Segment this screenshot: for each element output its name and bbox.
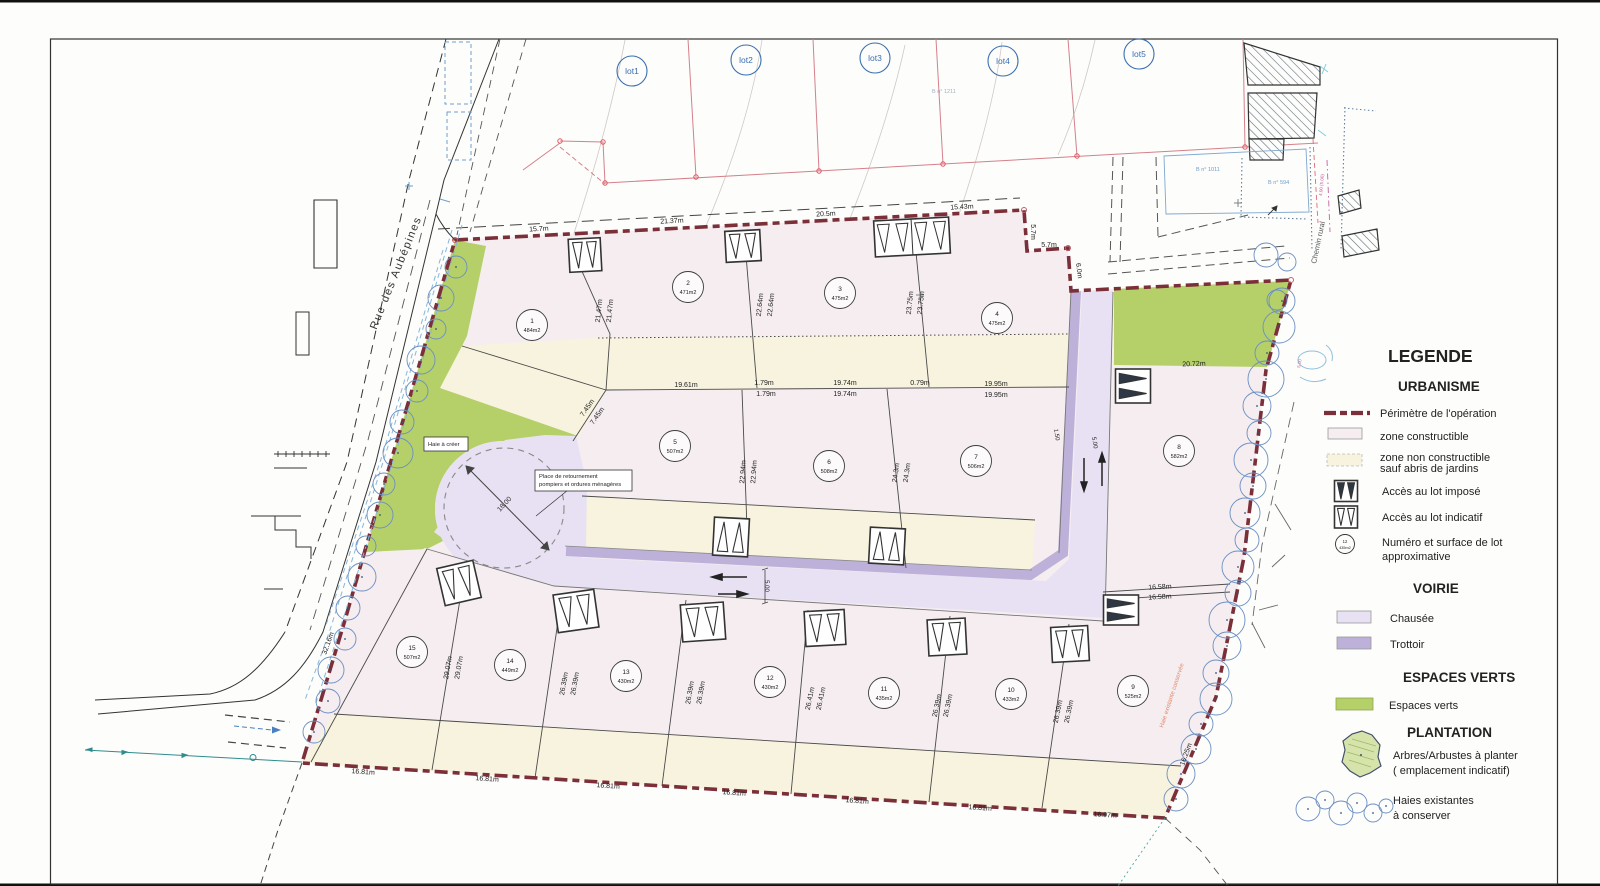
svg-text:525m2: 525m2 [1125, 694, 1142, 700]
svg-text:7: 7 [974, 454, 978, 461]
svg-text:VOIRIE: VOIRIE [1413, 581, 1459, 596]
svg-text:lot4: lot4 [996, 56, 1010, 66]
svg-text:lot5: lot5 [1132, 49, 1146, 59]
svg-text:Espaces verts: Espaces verts [1389, 700, 1459, 712]
svg-text:475m2: 475m2 [832, 296, 849, 302]
svg-text:5: 5 [673, 439, 677, 446]
svg-text:à conserver: à conserver [1393, 810, 1451, 822]
svg-text:15.7m: 15.7m [529, 225, 549, 233]
svg-text:4: 4 [995, 311, 999, 318]
svg-text:5.00: 5.00 [763, 580, 769, 592]
svg-text:12: 12 [766, 675, 774, 682]
svg-text:1.79m: 1.79m [754, 380, 774, 387]
svg-text:508m2: 508m2 [821, 469, 838, 475]
svg-text:16.58m: 16.58m [1148, 583, 1172, 591]
svg-text:Numéro et surface de lot: Numéro et surface de lot [1382, 537, 1502, 549]
svg-text:19.61m: 19.61m [674, 382, 698, 389]
svg-text:20.72m: 20.72m [1182, 361, 1206, 369]
svg-text:507m2: 507m2 [404, 655, 421, 661]
svg-text:pompiers et ordures ménagères: pompiers et ordures ménagères [539, 482, 621, 488]
svg-text:20.5m: 20.5m [816, 210, 836, 218]
svg-text:URBANISME: URBANISME [1398, 379, 1480, 394]
svg-text:16.58m: 16.58m [1148, 593, 1172, 601]
svg-text:8: 8 [1177, 444, 1181, 451]
svg-text:19.95m: 19.95m [984, 381, 1008, 388]
svg-text:582m2: 582m2 [1171, 454, 1188, 460]
svg-text:6: 6 [827, 459, 831, 466]
svg-text:Place de retournement: Place de retournement [539, 474, 598, 480]
svg-text:14: 14 [506, 658, 514, 665]
svg-text:PLANTATION: PLANTATION [1407, 725, 1492, 740]
svg-text:lot1: lot1 [625, 66, 639, 76]
svg-text:Périmètre de l'opération: Périmètre de l'opération [1380, 408, 1496, 420]
svg-text:Accès au lot indicatif: Accès au lot indicatif [1382, 512, 1483, 524]
svg-text:430m2: 430m2 [762, 685, 779, 691]
svg-text:lot3: lot3 [868, 53, 882, 63]
svg-text:430m2: 430m2 [618, 679, 635, 685]
svg-text:1: 1 [530, 318, 534, 325]
svg-text:Chausée: Chausée [1390, 613, 1434, 625]
svg-text:21.37m: 21.37m [660, 217, 684, 225]
svg-text:471m2: 471m2 [680, 290, 697, 296]
svg-text:3: 3 [838, 286, 842, 293]
svg-text:11: 11 [881, 686, 888, 693]
svg-text:507m2: 507m2 [667, 449, 684, 455]
svg-text:15: 15 [408, 645, 416, 652]
svg-text:484m2: 484m2 [524, 328, 541, 334]
svg-text:sauf abris de jardins: sauf abris de jardins [1380, 463, 1479, 475]
svg-text:449m2: 449m2 [502, 668, 519, 674]
svg-text:Haies existantes: Haies existantes [1393, 795, 1474, 807]
svg-text:433m2: 433m2 [1003, 697, 1020, 703]
svg-text:Haie à créer: Haie à créer [428, 442, 460, 448]
svg-text:19.95m: 19.95m [984, 392, 1008, 399]
svg-text:Arbres/Arbustes à planter: Arbres/Arbustes à planter [1393, 750, 1518, 762]
svg-text:Trottoir: Trottoir [1390, 639, 1425, 651]
svg-text:12: 12 [1343, 539, 1348, 544]
svg-text:1.79m: 1.79m [756, 391, 776, 398]
svg-text:435m2: 435m2 [1339, 546, 1351, 550]
svg-text:zone constructible: zone constructible [1380, 431, 1469, 443]
svg-text:ESPACES VERTS: ESPACES VERTS [1403, 670, 1515, 685]
svg-text:10: 10 [1007, 687, 1015, 694]
svg-text:LEGENDE: LEGENDE [1388, 346, 1473, 366]
svg-text:475m2: 475m2 [989, 321, 1006, 327]
svg-text:B n° 1011: B n° 1011 [1196, 167, 1220, 173]
svg-text:B n° 1211: B n° 1211 [932, 89, 956, 95]
svg-text:13: 13 [622, 669, 630, 676]
svg-text:B n° 594: B n° 594 [1268, 180, 1289, 186]
svg-text:Accès au lot imposé: Accès au lot imposé [1382, 486, 1480, 498]
svg-text:5.7m: 5.7m [1041, 242, 1057, 249]
svg-text:( emplacement indicatif): ( emplacement indicatif) [1393, 765, 1510, 777]
svg-text:506m2: 506m2 [968, 464, 985, 470]
svg-text:15.43m: 15.43m [950, 203, 974, 211]
svg-text:19.74m: 19.74m [833, 391, 857, 398]
svg-text:9: 9 [1131, 684, 1135, 691]
svg-text:approximative: approximative [1382, 551, 1450, 563]
svg-text:2: 2 [686, 280, 690, 287]
svg-text:0.79m: 0.79m [910, 380, 930, 387]
svg-text:lot2: lot2 [739, 55, 753, 65]
svg-text:435m2: 435m2 [876, 696, 893, 702]
svg-text:5.7m: 5.7m [1029, 224, 1036, 240]
svg-text:19.74m: 19.74m [833, 380, 857, 387]
